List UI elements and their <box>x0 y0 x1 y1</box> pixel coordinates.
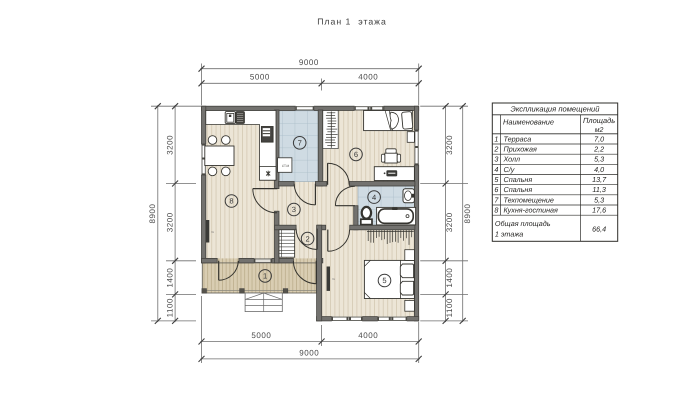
svg-text:6: 6 <box>494 185 498 194</box>
svg-text:1400: 1400 <box>445 268 454 288</box>
svg-text:9000: 9000 <box>299 348 319 357</box>
svg-text:9000: 9000 <box>299 58 319 67</box>
svg-text:Терраса: Терраса <box>504 134 532 143</box>
svg-text:4: 4 <box>494 165 498 174</box>
svg-text:3: 3 <box>494 155 498 164</box>
svg-text:4: 4 <box>372 193 376 202</box>
svg-text:Экспликация помещений: Экспликация помещений <box>511 105 601 114</box>
svg-text:tv: tv <box>212 230 215 234</box>
svg-text:4,0: 4,0 <box>594 165 604 174</box>
svg-text:Прихожая: Прихожая <box>504 145 537 154</box>
svg-text:5000: 5000 <box>251 331 271 340</box>
svg-text:8900: 8900 <box>148 204 157 224</box>
svg-text:5,3: 5,3 <box>594 155 604 164</box>
svg-text:4000: 4000 <box>358 331 378 340</box>
svg-text:6: 6 <box>354 150 358 159</box>
svg-text:1: 1 <box>494 134 498 143</box>
svg-text:Техпомещение: Техпомещение <box>504 195 554 204</box>
svg-text:8: 8 <box>494 206 498 215</box>
svg-text:2: 2 <box>493 145 498 154</box>
svg-text:5: 5 <box>382 276 386 285</box>
svg-text:3200: 3200 <box>166 212 175 232</box>
svg-text:3200: 3200 <box>166 135 175 155</box>
svg-text:План 1 этажа: План 1 этажа <box>317 17 387 27</box>
svg-text:Общая площадь: Общая площадь <box>495 219 551 228</box>
svg-text:м2: м2 <box>595 127 604 134</box>
svg-text:3: 3 <box>292 205 296 214</box>
svg-text:66,4: 66,4 <box>592 225 606 234</box>
svg-text:С/у: С/у <box>504 165 515 174</box>
svg-text:17,6: 17,6 <box>592 206 606 215</box>
svg-text:Наименование: Наименование <box>503 118 554 127</box>
svg-text:7,0: 7,0 <box>594 134 604 143</box>
svg-text:1: 1 <box>263 272 267 281</box>
svg-text:1100: 1100 <box>166 298 175 317</box>
svg-text:2: 2 <box>305 234 309 243</box>
svg-text:5000: 5000 <box>250 73 270 82</box>
svg-text:13,7: 13,7 <box>592 175 607 184</box>
svg-text:1100: 1100 <box>445 298 454 317</box>
svg-text:4000: 4000 <box>358 73 378 82</box>
svg-text:СТ.М: СТ.М <box>282 164 290 168</box>
svg-text:Кухня-гостиная: Кухня-гостиная <box>504 206 559 215</box>
svg-text:3200: 3200 <box>445 135 454 155</box>
svg-text:Спальня: Спальня <box>504 175 533 184</box>
svg-text:3200: 3200 <box>445 212 454 232</box>
svg-text:2,2: 2,2 <box>593 145 604 154</box>
svg-text:11,3: 11,3 <box>592 185 605 194</box>
svg-text:1400: 1400 <box>166 268 175 288</box>
svg-text:tv: tv <box>333 277 336 281</box>
svg-text:Площадь: Площадь <box>583 116 615 125</box>
svg-text:Холл: Холл <box>503 155 521 164</box>
svg-text:5,3: 5,3 <box>594 195 604 204</box>
svg-text:7: 7 <box>298 139 302 148</box>
svg-text:8900: 8900 <box>463 204 472 224</box>
svg-text:1 этажа: 1 этажа <box>495 230 523 239</box>
svg-text:8: 8 <box>229 197 233 206</box>
svg-text:Спальня: Спальня <box>504 185 533 194</box>
